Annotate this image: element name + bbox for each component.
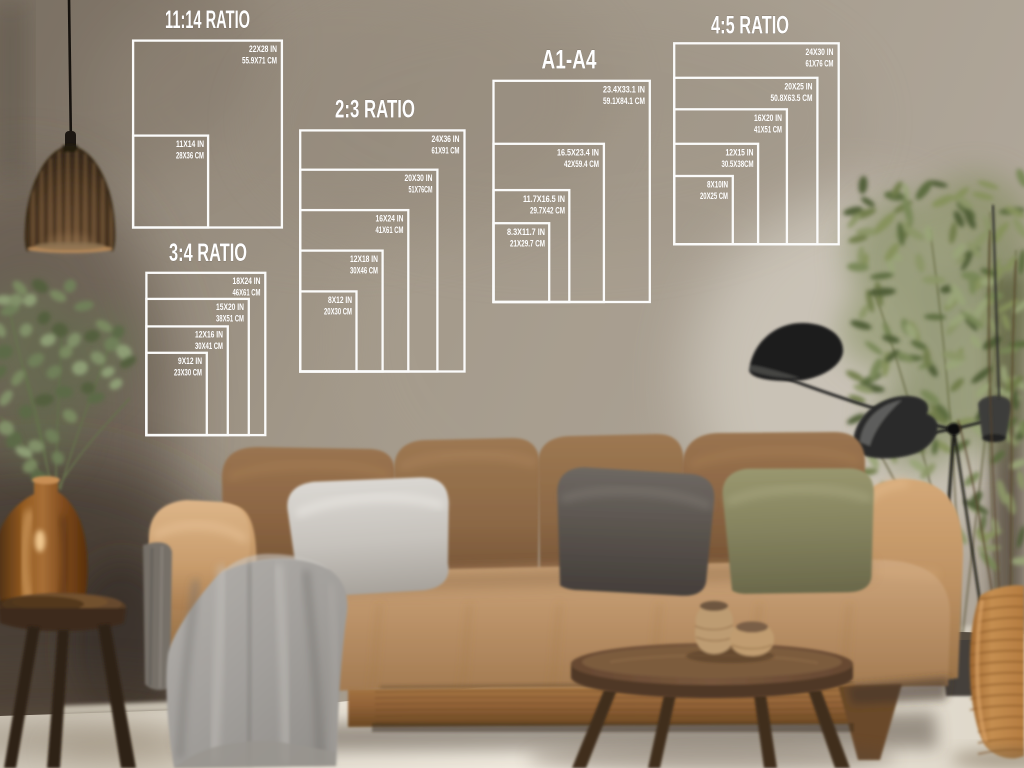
svg-text:11:14 RATIO: 11:14 RATIO (165, 6, 250, 34)
svg-text:4:5 RATIO: 4:5 RATIO (711, 12, 789, 40)
svg-text:20X30 CM: 20X30 CM (324, 307, 352, 318)
svg-text:29.7X42 CM: 29.7X42 CM (530, 206, 565, 217)
svg-text:24X30 IN: 24X30 IN (806, 47, 834, 58)
svg-text:18X24 IN: 18X24 IN (233, 276, 261, 287)
svg-text:11X14 IN: 11X14 IN (176, 139, 204, 150)
svg-text:20X25 CM: 20X25 CM (700, 191, 728, 202)
svg-text:9X12 IN: 9X12 IN (178, 356, 202, 367)
svg-text:16.5X23.4 IN: 16.5X23.4 IN (557, 148, 599, 159)
svg-text:41X61 CM: 41X61 CM (376, 225, 404, 236)
svg-text:12X18 IN: 12X18 IN (350, 254, 378, 265)
svg-text:23X30 CM: 23X30 CM (174, 368, 202, 379)
svg-text:50.8X63.5 CM: 50.8X63.5 CM (771, 93, 813, 104)
svg-text:28X36 CM: 28X36 CM (176, 151, 204, 162)
svg-text:A1-A4: A1-A4 (542, 45, 597, 75)
svg-text:21X29.7 CM: 21X29.7 CM (510, 239, 545, 250)
svg-text:2:3 RATIO: 2:3 RATIO (335, 96, 415, 124)
svg-text:8X12 IN: 8X12 IN (328, 295, 352, 306)
svg-text:24X36 IN: 24X36 IN (432, 134, 460, 145)
svg-text:23.4X33.1 IN: 23.4X33.1 IN (603, 85, 645, 96)
svg-text:30X46 CM: 30X46 CM (350, 266, 378, 277)
svg-text:8X10IN: 8X10IN (707, 180, 728, 191)
svg-text:41X51 CM: 41X51 CM (754, 125, 782, 136)
svg-text:12X15 IN: 12X15 IN (726, 148, 754, 159)
svg-text:30.5X38CM: 30.5X38CM (722, 159, 754, 170)
svg-text:11.7X16.5 IN: 11.7X16.5 IN (523, 194, 565, 205)
svg-text:42X59.4 CM: 42X59.4 CM (564, 159, 599, 170)
svg-text:16X24 IN: 16X24 IN (376, 214, 404, 225)
svg-text:22X28 IN: 22X28 IN (249, 44, 277, 55)
svg-text:15X20 IN: 15X20 IN (216, 302, 244, 313)
svg-text:12X16 IN: 12X16 IN (195, 330, 223, 341)
svg-text:38X51 CM: 38X51 CM (216, 314, 244, 325)
svg-text:16X20 IN: 16X20 IN (754, 113, 782, 124)
svg-text:20X25 IN: 20X25 IN (785, 82, 813, 93)
svg-text:61X76 CM: 61X76 CM (806, 59, 834, 70)
svg-text:51X76CM: 51X76CM (409, 185, 433, 196)
svg-text:8.3X11.7 IN: 8.3X11.7 IN (507, 227, 545, 238)
svg-text:46X61 CM: 46X61 CM (233, 288, 261, 299)
svg-text:55.9X71 CM: 55.9X71 CM (242, 56, 277, 67)
svg-text:30X41 CM: 30X41 CM (195, 341, 223, 352)
svg-text:61X91 CM: 61X91 CM (432, 146, 460, 157)
svg-text:3:4 RATIO: 3:4 RATIO (169, 239, 247, 267)
svg-text:20X30 IN: 20X30 IN (405, 173, 433, 184)
svg-text:59.1X84.1 CM: 59.1X84.1 CM (603, 96, 645, 107)
